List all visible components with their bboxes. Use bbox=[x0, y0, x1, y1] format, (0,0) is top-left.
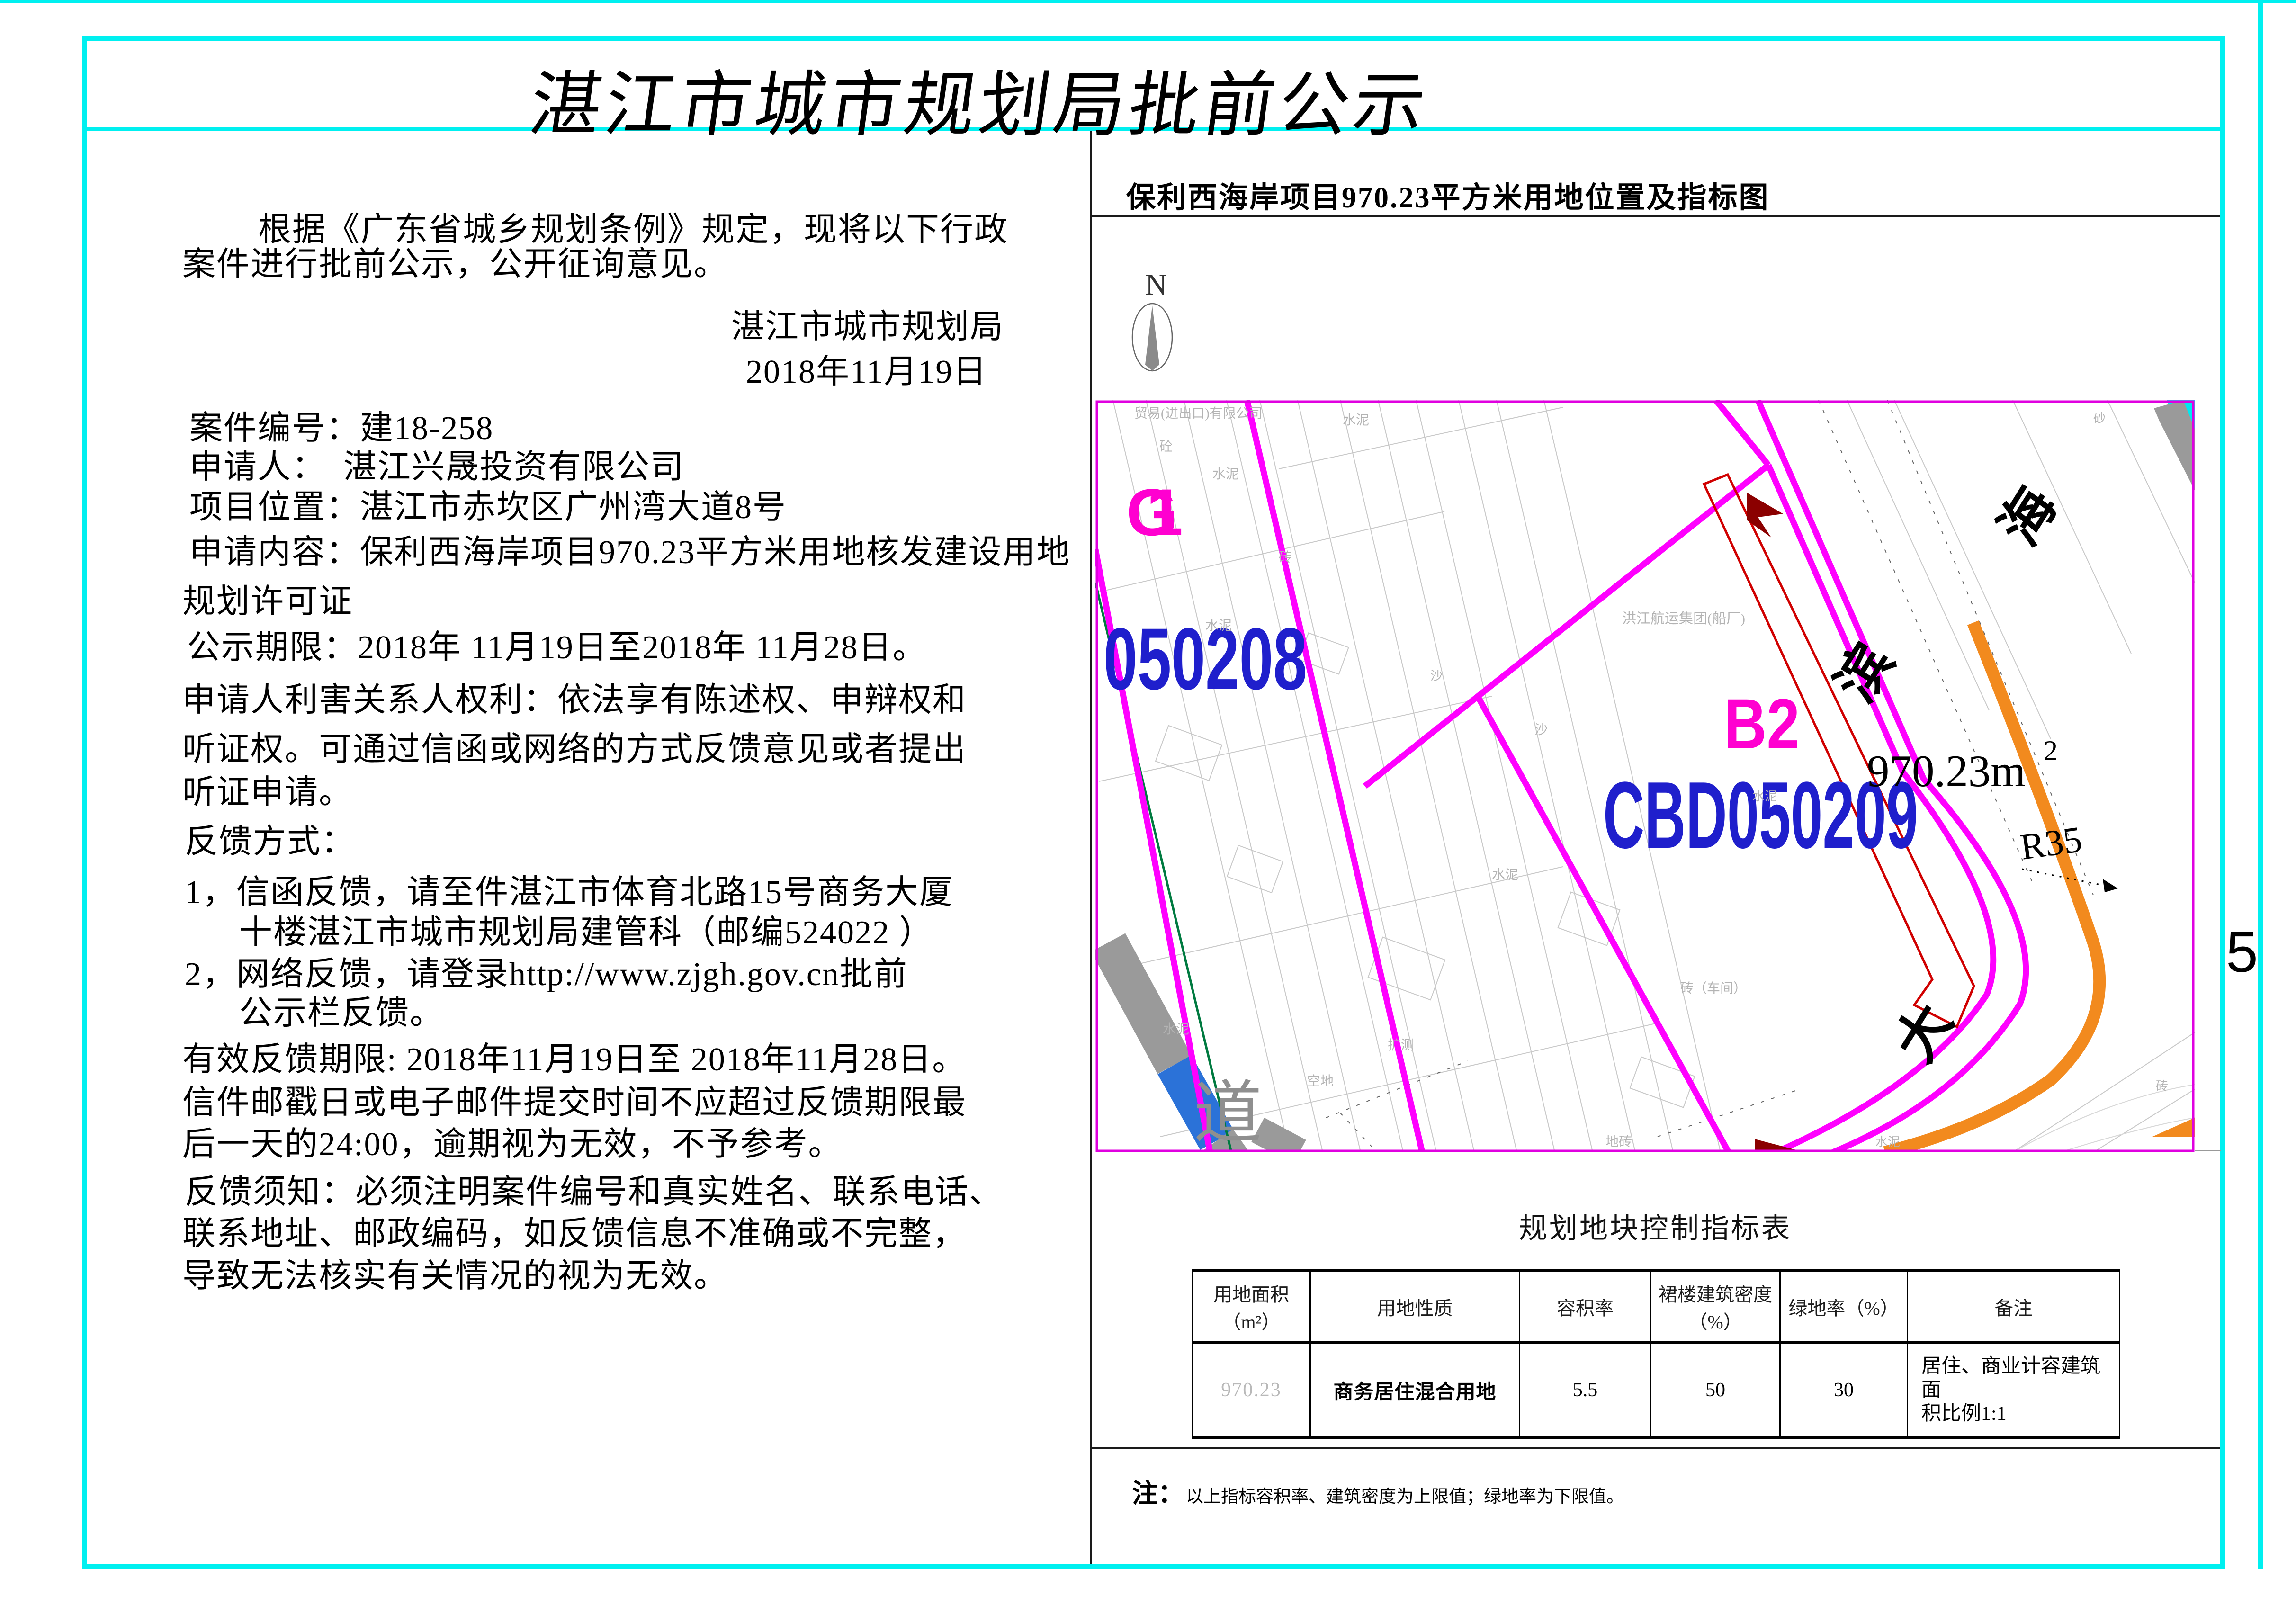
header-far: 容积率 bbox=[1520, 1270, 1651, 1343]
cell-density: 50 bbox=[1651, 1343, 1780, 1438]
map-annotation-label: 水泥 bbox=[1875, 1135, 1900, 1149]
red-arrow-top bbox=[1747, 493, 1783, 538]
map-annotation-label: 水泥 bbox=[1752, 790, 1777, 803]
remark-line: 居住、商业计容建筑面 bbox=[1921, 1355, 2119, 1402]
map-annotation-label: 砖 bbox=[1279, 550, 1292, 565]
rights-line: 听证权。可通过信函或网络的方式反馈意见或者提出 bbox=[182, 733, 967, 766]
feedback-web-line: 公示栏反馈。 bbox=[239, 997, 444, 1030]
valid-feedback-period: 有效反馈期限: 2018年11月19日至 2018年11月28日。 bbox=[182, 1043, 966, 1077]
deadline-line: 后一天的24:00，逾期视为无效，不予参考。 bbox=[182, 1128, 842, 1161]
feedback-notice-line: 反馈须知：必须注明案件编号和真实姓名、联系电话、 bbox=[185, 1176, 1003, 1209]
cell-land-use: 商务居住混合用地 bbox=[1310, 1343, 1520, 1438]
header-remarks: 备注 bbox=[1908, 1270, 2120, 1343]
map-annotation-label: 扩测 bbox=[1388, 1038, 1414, 1053]
map-annotation-label: 水泥 bbox=[1212, 467, 1239, 482]
permit-type: 规划许可证 bbox=[182, 585, 353, 619]
issue-date: 2018年11月19日 bbox=[746, 356, 987, 389]
map-annotation-label: 水泥 bbox=[1492, 867, 1518, 882]
map-annotation-label: 空地 bbox=[1307, 1074, 1334, 1089]
notice-line: 根据《广东省城乡规划条例》规定，现将以下行政 bbox=[258, 214, 1008, 247]
map-annotation-label: 水泥 bbox=[1163, 1022, 1189, 1037]
header-land-area: 用地面积（m²） bbox=[1193, 1270, 1310, 1343]
map-annotation-label: 地砖 bbox=[1605, 1134, 1632, 1149]
map-annotation-label: 沙 bbox=[1430, 669, 1443, 683]
case-number: 案件编号：建18-258 bbox=[189, 412, 493, 445]
feedback-web-line: 2，网络反馈，请登录http://www.zjgh.gov.cn批前 bbox=[185, 958, 908, 991]
map-annotation-label: 砂 bbox=[2093, 412, 2106, 425]
feedback-notice-line: 导致无法核实有关情况的视为无效。 bbox=[182, 1260, 728, 1293]
radius-r35-label: R35 bbox=[2018, 818, 2084, 868]
map-annotation-label: 水泥 bbox=[1205, 618, 1232, 633]
corner-gray-band bbox=[2154, 400, 2195, 490]
panel-divider bbox=[1090, 131, 1092, 1564]
page-top-edge-line bbox=[0, 0, 2296, 3]
map-annotation-label: 砖 bbox=[2156, 1079, 2168, 1093]
feedback-notice-line: 联系地址、邮政编码，如反馈信息不准确或不完整， bbox=[182, 1218, 967, 1251]
header-green-ratio: 绿地率（%） bbox=[1780, 1270, 1908, 1343]
table-header-row: 用地面积（m²） 用地性质 容积率 裙楼建筑密度（%） 绿地率（%） 备注 bbox=[1193, 1270, 2120, 1343]
page-title: 湛江市城市规划局批前公示 bbox=[476, 47, 1485, 150]
remark-line: 积比例1:1 bbox=[1921, 1402, 2119, 1426]
feedback-mail-line: 十楼湛江市城市规划局建管科（邮编524022 ） bbox=[239, 916, 933, 950]
map-annotation-label: 砼 bbox=[1159, 439, 1173, 454]
cell-remarks: 居住、商业计容建筑面 积比例1:1 bbox=[1908, 1343, 2120, 1438]
plot-area-superscript: 2 bbox=[2044, 735, 2058, 766]
table-note: 注： 以上指标容积率、建筑密度为上限值；绿地率为下限值。 bbox=[1132, 1472, 1624, 1510]
road-name-glyph: 大 bbox=[1884, 994, 1964, 1072]
road-name-char: 道 bbox=[1193, 1076, 1262, 1152]
feedback-methods-heading: 反馈方式： bbox=[185, 825, 355, 859]
table-data-row: 970.23 商务居住混合用地 5.5 50 30 居住、商业计容建筑面 积比例… bbox=[1193, 1343, 2120, 1438]
zone-g1-label: G1 bbox=[1126, 475, 1183, 549]
cell-far: 5.5 bbox=[1520, 1343, 1651, 1438]
header-density: 裙楼建筑密度（%） bbox=[1651, 1270, 1780, 1343]
cell-land-area: 970.23 bbox=[1193, 1343, 1310, 1438]
orange-wedge bbox=[2152, 1118, 2195, 1137]
map-edge-tick bbox=[2195, 1150, 2221, 1151]
map-annotation-label: 洪江航运集团(船厂) bbox=[1622, 611, 1745, 627]
control-indicator-table: 用地面积（m²） 用地性质 容积率 裙楼建筑密度（%） 绿地率（%） 备注 97… bbox=[1192, 1269, 2120, 1439]
compass-needle-icon bbox=[1145, 305, 1159, 371]
project-location: 项目位置：湛江市赤坎区广州湾大道8号 bbox=[189, 491, 787, 524]
plot-area-label: 970.23m bbox=[1867, 746, 2026, 796]
issuer-name: 湛江市城市规划局 bbox=[731, 311, 1004, 344]
north-compass: N bbox=[1127, 265, 1184, 379]
table-title: 规划地块控制指标表 bbox=[1192, 1205, 2119, 1247]
map-annotation-label: 沙 bbox=[1534, 723, 1548, 737]
notice-page: 湛江市城市规划局批前公示 根据《广东省城乡规划条例》规定，现将以下行政 案件进行… bbox=[0, 0, 2296, 1615]
zone-b2-label: B2 bbox=[1724, 684, 1800, 763]
road-name-glyph: 海 bbox=[1988, 477, 2068, 556]
compass-n-label: N bbox=[1145, 268, 1167, 301]
frame-left-border bbox=[82, 36, 87, 1569]
deadline-line: 信件邮戳日或电子邮件提交时间不应超过反馈期限最 bbox=[182, 1086, 967, 1120]
application-content: 申请内容：保利西海岸项目970.23平方米用地核发建设用地 bbox=[189, 536, 1071, 569]
header-land-use: 用地性质 bbox=[1310, 1270, 1520, 1343]
feedback-mail-line: 1，信函反馈，请至件湛江市体育北路15号商务大厦 bbox=[185, 876, 953, 909]
publicity-period: 公示期限：2018年 11月19日至2018年 11月28日。 bbox=[187, 631, 927, 664]
cell-green-ratio: 30 bbox=[1780, 1343, 1908, 1438]
site-map: G1 050208 B2 CBD050209 970.23m 2 R35 道 贸… bbox=[1095, 400, 2195, 1152]
note-text: 以上指标容积率、建筑密度为上限值；绿地率为下限值。 bbox=[1186, 1487, 1624, 1507]
r35-arrowhead-icon bbox=[2103, 879, 2118, 892]
applicant: 申请人： 湛江兴晟投资有限公司 bbox=[189, 451, 684, 484]
note-prefix: 注： bbox=[1132, 1479, 1184, 1508]
map-title-underline bbox=[1092, 215, 2220, 217]
map-annotation-label: 贸易(进出口)有限公司 bbox=[1134, 406, 1263, 421]
frame-right-border bbox=[2220, 36, 2225, 1569]
map-panel-title: 保利西海岸项目970.23平方米用地位置及指标图 bbox=[1126, 173, 1770, 216]
note-divider-line bbox=[1092, 1447, 2220, 1449]
rights-line: 听证申请。 bbox=[182, 776, 353, 809]
page-right-edge-line bbox=[2258, 0, 2263, 1569]
margin-number: 5 bbox=[2226, 919, 2258, 985]
map-annotation-label: 水泥 bbox=[1343, 413, 1369, 428]
rights-line: 申请人利害关系人权利：依法享有陈述权、申辩权和 bbox=[182, 684, 967, 717]
notice-line: 案件进行批前公示，公开征询意见。 bbox=[182, 248, 728, 281]
map-annotation-label: 砖（车间） bbox=[1680, 981, 1747, 996]
frame-top-border bbox=[82, 36, 2225, 41]
frame-bottom-border bbox=[82, 1564, 2225, 1569]
